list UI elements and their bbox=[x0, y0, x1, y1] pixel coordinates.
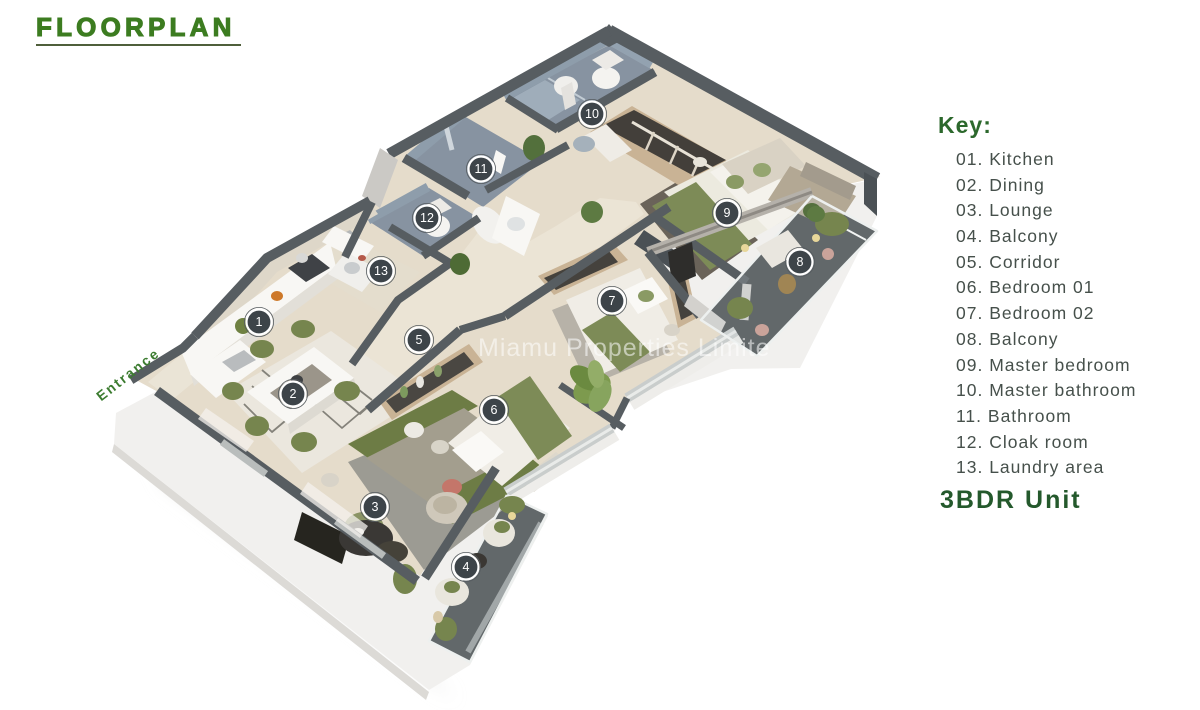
svg-text:4: 4 bbox=[463, 560, 470, 574]
svg-text:2: 2 bbox=[290, 387, 297, 401]
svg-text:6: 6 bbox=[491, 403, 498, 417]
svg-text:1: 1 bbox=[256, 315, 263, 329]
svg-text:10: 10 bbox=[585, 107, 599, 121]
svg-text:9: 9 bbox=[724, 206, 731, 220]
svg-text:7: 7 bbox=[609, 294, 616, 308]
svg-text:3: 3 bbox=[372, 500, 379, 514]
svg-text:8: 8 bbox=[797, 255, 804, 269]
svg-text:13: 13 bbox=[374, 264, 388, 278]
svg-text:11: 11 bbox=[475, 162, 488, 176]
svg-text:12: 12 bbox=[420, 211, 434, 225]
svg-text:5: 5 bbox=[416, 333, 423, 347]
